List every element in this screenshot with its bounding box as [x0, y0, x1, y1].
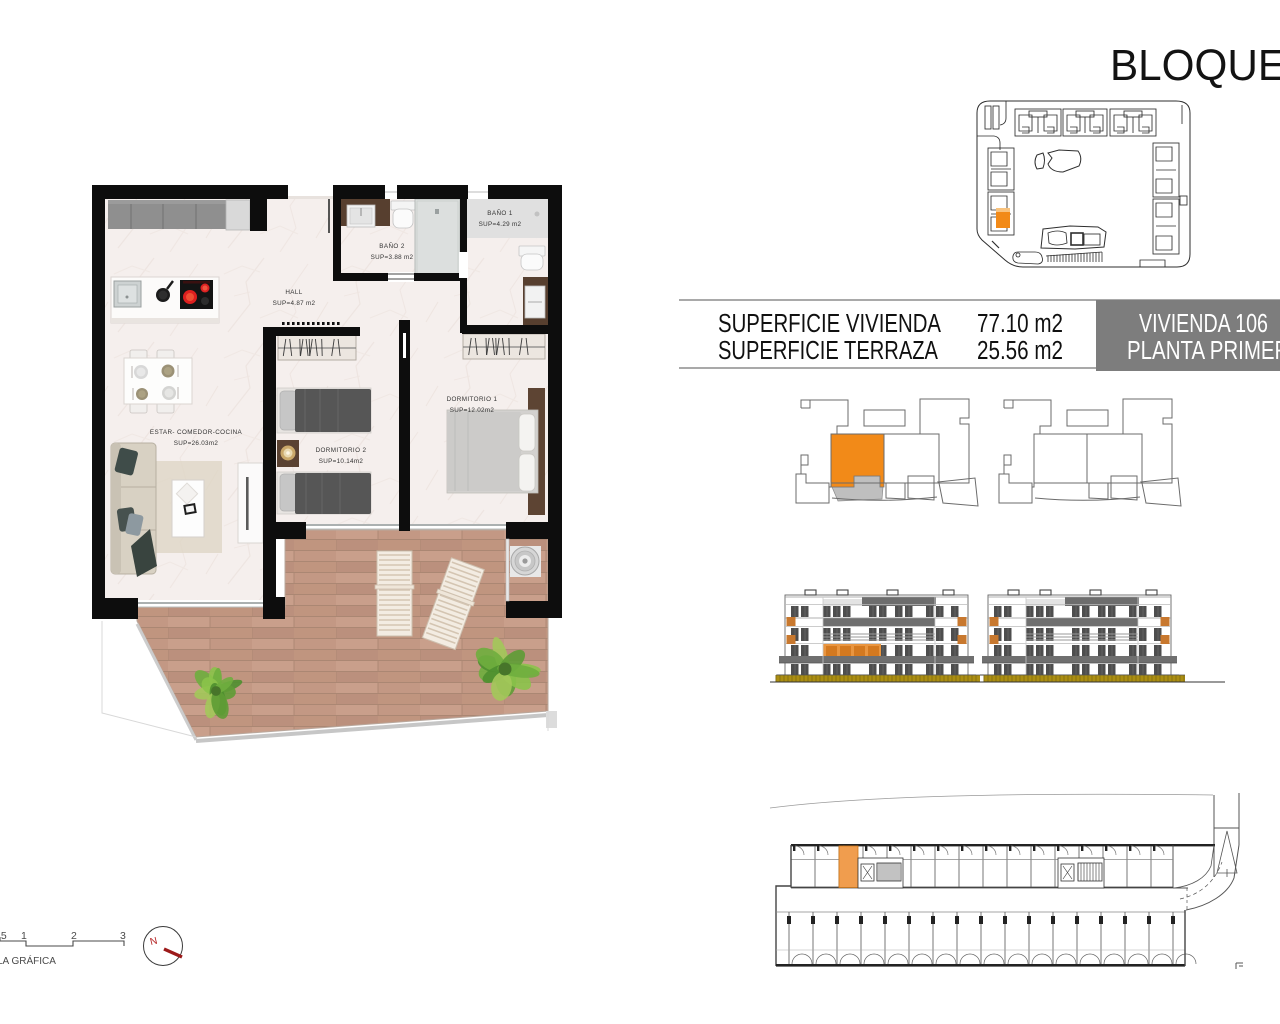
svg-text:DORMITORIO 2: DORMITORIO 2	[316, 447, 367, 454]
svg-text:N: N	[149, 936, 159, 948]
svg-text:SUP=12.02m2: SUP=12.02m2	[450, 407, 495, 414]
svg-text:,5: ,5	[0, 930, 7, 942]
svg-text:BAÑO 2: BAÑO 2	[379, 241, 405, 250]
svg-text:LA GRÁFICA: LA GRÁFICA	[0, 954, 56, 967]
svg-text:1: 1	[21, 930, 27, 942]
svg-text:SUP=3.88 m2: SUP=3.88 m2	[371, 254, 414, 261]
svg-text:SUPERFICIE VIVIENDA: SUPERFICIE VIVIENDA	[718, 310, 941, 338]
svg-text:SUP=4.87 m2: SUP=4.87 m2	[273, 300, 316, 307]
svg-text:BAÑO 1: BAÑO 1	[487, 208, 513, 217]
svg-text:DORMITORIO 1: DORMITORIO 1	[447, 396, 498, 403]
svg-text:SUP=10.14m2: SUP=10.14m2	[319, 458, 364, 465]
svg-text:ESTAR- COMEDOR-COCINA: ESTAR- COMEDOR-COCINA	[150, 429, 243, 436]
svg-text:BLOQUE: BLOQUE	[1110, 41, 1280, 90]
svg-text:VIVIENDA 106: VIVIENDA 106	[1139, 310, 1268, 338]
svg-text:3: 3	[120, 930, 126, 942]
svg-text:SUP=4.29 m2: SUP=4.29 m2	[479, 221, 522, 228]
svg-text:SUP=26.03m2: SUP=26.03m2	[174, 440, 219, 447]
svg-text:25.56 m2: 25.56 m2	[977, 337, 1063, 365]
svg-text:2: 2	[71, 930, 77, 942]
svg-text:HALL: HALL	[285, 289, 302, 296]
svg-text:77.10 m2: 77.10 m2	[977, 310, 1063, 338]
svg-text:PLANTA PRIMERA: PLANTA PRIMERA	[1127, 337, 1280, 365]
svg-text:SUPERFICIE TERRAZA: SUPERFICIE TERRAZA	[718, 337, 938, 365]
